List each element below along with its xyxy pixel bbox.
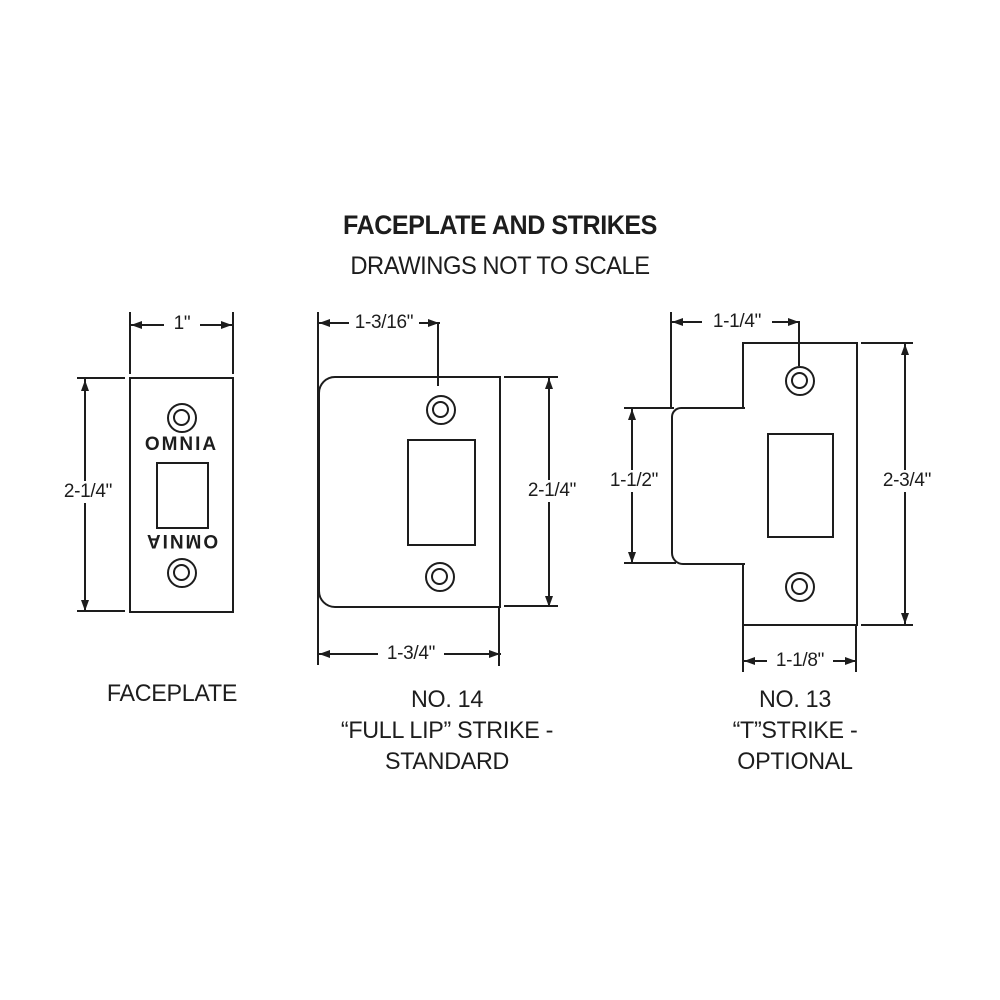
dimension-arrow-up [81, 380, 89, 391]
screw-hole-inner-ring [173, 564, 190, 581]
caption-line: OPTIONAL [657, 746, 932, 777]
dimension-arrow-down [901, 613, 909, 624]
caption-line: NO. 14 [309, 684, 584, 715]
extension-line [670, 312, 672, 407]
extension-line [861, 624, 913, 626]
dim-label-strike13-lip-height: 1-1/2" [604, 470, 664, 492]
dimension-arrow-up [545, 378, 553, 389]
caption-line: “FULL LIP” STRIKE - [309, 715, 584, 746]
faceplate-top-screw-hole [167, 403, 197, 433]
spec-sheet: FACEPLATE AND STRIKES DRAWINGS NOT TO SC… [0, 0, 1000, 1000]
dimension-arrow-left [319, 319, 330, 327]
dimension-arrow-left [131, 321, 142, 329]
brand-stamp-bottom: OMNIA [129, 530, 234, 550]
strike13-top-screw-hole [785, 366, 815, 396]
dimension-arrow-left [744, 657, 755, 665]
strike14-latch-opening [407, 439, 476, 546]
extension-line [742, 626, 744, 672]
faceplate-caption: FACEPLATE [94, 678, 249, 709]
extension-line [232, 312, 234, 374]
full-lip-strike-caption: NO. 14 “FULL LIP” STRIKE - STANDARD [309, 684, 584, 777]
extension-line [437, 322, 439, 386]
dim-label-strike13-bottom-width: 1-1/8" [767, 650, 833, 672]
extension-line [317, 312, 319, 665]
extension-line [624, 407, 674, 409]
strike13-latch-opening [767, 433, 834, 538]
page-title: FACEPLATE AND STRIKES [35, 210, 965, 241]
dimension-arrow-right [845, 657, 856, 665]
t-strike-caption: NO. 13 “T”STRIKE - OPTIONAL [657, 684, 932, 777]
dimension-arrow-right [489, 650, 500, 658]
extension-line [798, 321, 800, 366]
dim-label-faceplate-width: 1" [164, 313, 200, 335]
screw-hole-inner-ring [432, 401, 449, 418]
screw-hole-inner-ring [431, 568, 448, 585]
dimension-arrow-right [221, 321, 232, 329]
brand-stamp-top: OMNIA [129, 435, 234, 455]
caption-line: NO. 13 [657, 684, 932, 715]
t-strike-lip-wing [671, 407, 745, 565]
dimension-arrow-up [901, 344, 909, 355]
dimension-arrow-left [319, 650, 330, 658]
dim-label-faceplate-height: 2-1/4" [58, 481, 118, 503]
faceplate-latch-opening [156, 462, 209, 529]
page-subtitle: DRAWINGS NOT TO SCALE [25, 252, 975, 281]
dim-label-strike13-top-width: 1-1/4" [702, 311, 772, 333]
faceplate-bottom-screw-hole [167, 558, 197, 588]
dimension-arrow-down [81, 600, 89, 611]
strike13-bottom-screw-hole [785, 572, 815, 602]
dimension-arrow-left [672, 318, 683, 326]
screw-hole-inner-ring [173, 409, 190, 426]
strike14-bottom-screw-hole [425, 562, 455, 592]
extension-line [855, 626, 857, 672]
strike14-top-screw-hole [426, 395, 456, 425]
caption-line: “T”STRIKE - [657, 715, 932, 746]
dim-label-strike14-bottom-width: 1-3/4" [378, 643, 444, 665]
dim-label-strike14-height: 2-1/4" [522, 480, 582, 502]
screw-hole-inner-ring [791, 372, 808, 389]
dimension-arrow-up [628, 409, 636, 420]
extension-line [624, 562, 676, 564]
dim-label-strike14-top-width: 1-3/16" [349, 312, 419, 334]
dim-label-strike13-height: 2-3/4" [877, 470, 937, 492]
dimension-arrow-down [545, 596, 553, 607]
caption-line: STANDARD [309, 746, 584, 777]
screw-hole-inner-ring [791, 578, 808, 595]
